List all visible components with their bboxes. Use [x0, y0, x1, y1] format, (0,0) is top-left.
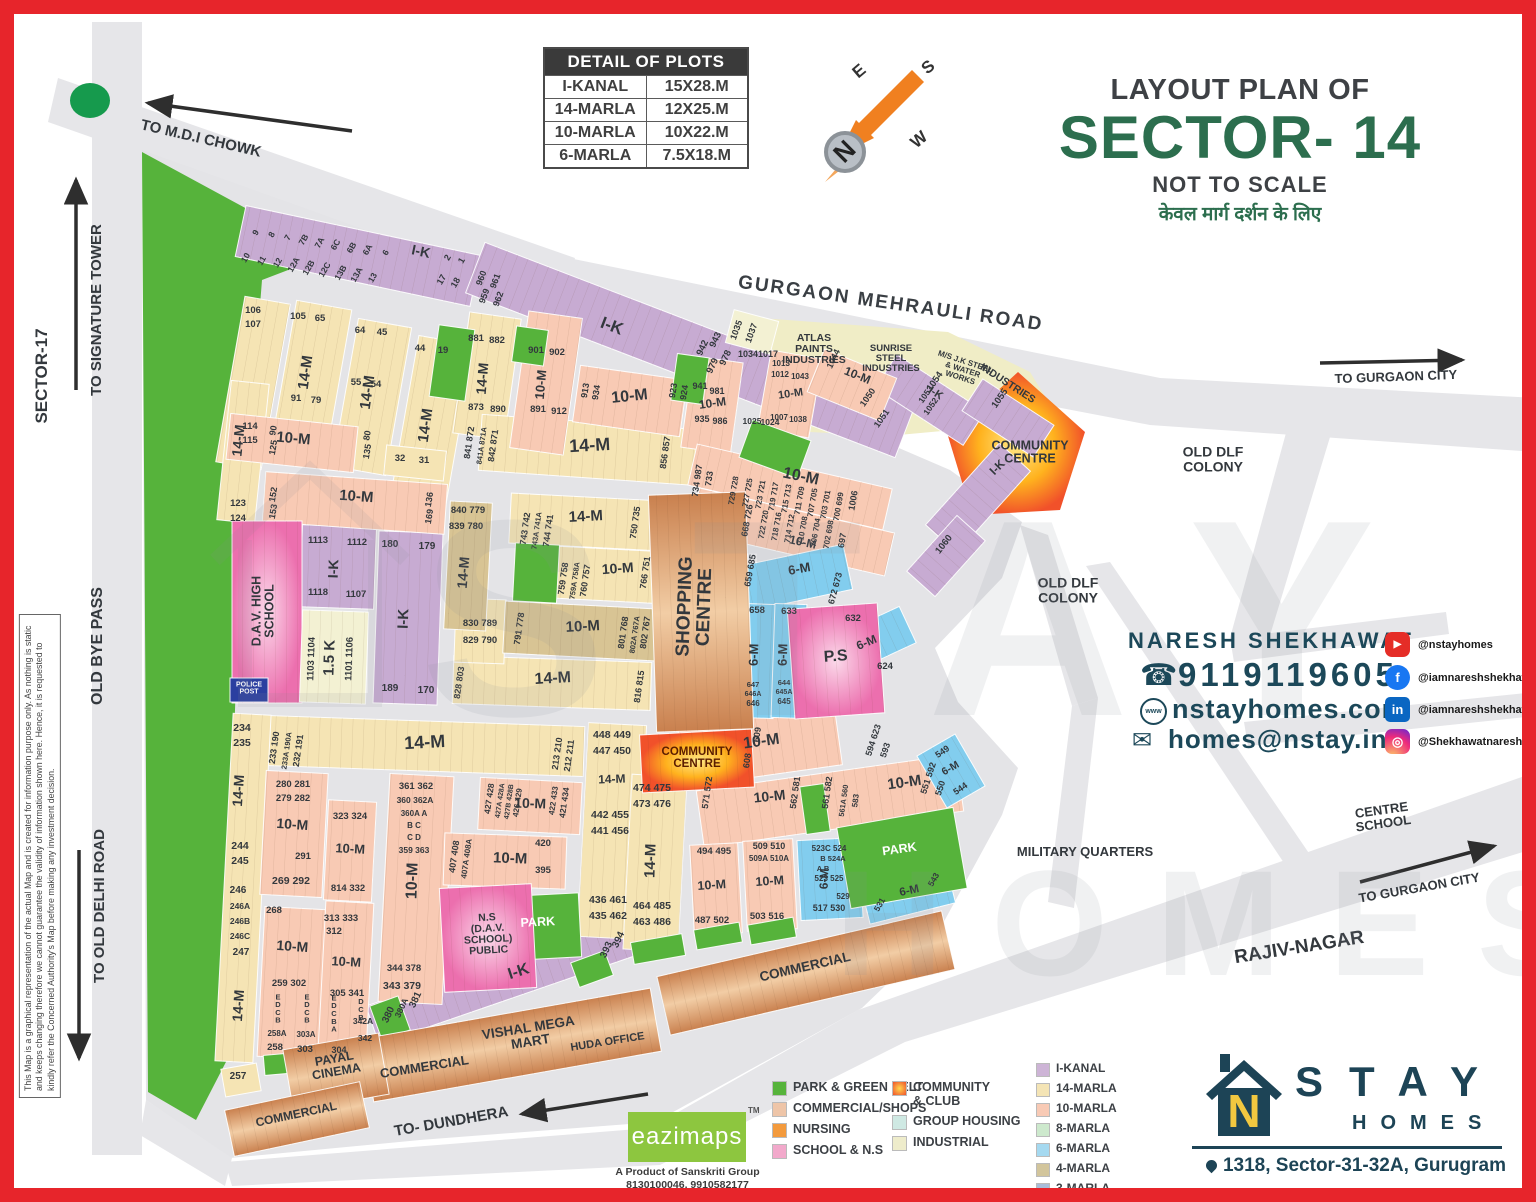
map-label: 360A A	[401, 809, 428, 818]
map-label: 45	[377, 327, 388, 338]
map-label: 1112	[347, 537, 367, 548]
map-label: 279 282	[276, 793, 310, 804]
title-not-to-scale: NOT TO SCALE	[1040, 172, 1440, 198]
address-text: 1318, Sector-31-32A, Gurugram	[1223, 1155, 1506, 1176]
map-label: 463 486	[633, 916, 671, 928]
map-label: 303A	[296, 1030, 315, 1039]
map-label: EDCBA	[331, 993, 337, 1033]
map-label: 65	[315, 313, 326, 324]
logo-homes: HOMES	[1352, 1112, 1495, 1135]
map-label: 79	[311, 395, 322, 406]
map-label: 10-M	[335, 840, 365, 857]
map-label: 14-M	[229, 989, 247, 1022]
map-label: 1012	[771, 370, 789, 379]
map-label: 935	[694, 414, 709, 424]
contact-phone[interactable]: 9119119605	[1178, 656, 1398, 694]
map-label: 873	[468, 402, 484, 413]
legend-swatch	[772, 1144, 787, 1159]
map-label: 986	[712, 416, 727, 426]
map-label: 106	[245, 305, 261, 316]
linkedin-icon: in	[1385, 697, 1410, 722]
legend-label: GROUP HOUSING	[913, 1114, 1020, 1128]
watermark-homes: HOMES	[835, 839, 1536, 1007]
map-label: 44	[415, 343, 426, 354]
map-label: 115	[242, 435, 258, 446]
legend-item: 14-MARLA	[1036, 1082, 1117, 1097]
legend-swatch	[1036, 1063, 1050, 1077]
map-label: 323 324	[333, 811, 368, 822]
map-label: 981	[709, 386, 724, 396]
map-label: 1118	[308, 587, 328, 598]
map-label: EDCB	[304, 992, 310, 1024]
map-label: 313 333	[324, 913, 358, 924]
nstay-house-logo: N	[1198, 1048, 1290, 1140]
phone-icon: ☎	[1140, 658, 1177, 693]
social-link-linkedin[interactable]: in@iamnareshshekhawat	[1385, 697, 1536, 722]
map-label: 1107	[346, 589, 367, 600]
map-label: EDCB	[275, 992, 281, 1024]
legend-label: 14-MARLA	[1056, 1082, 1117, 1096]
disclaimer-text: This Map is a graphical representation o…	[19, 614, 61, 1098]
map-label: 1113	[308, 535, 328, 546]
map-label: 342	[358, 1033, 372, 1043]
compass-rose-icon: N E S W	[800, 50, 960, 200]
map-label: 473 476	[633, 798, 671, 810]
title-line1: LAYOUT PLAN OF	[1040, 74, 1440, 107]
map-label: 14-M	[473, 362, 492, 395]
map-label: 442 455	[591, 809, 629, 821]
plot-type: I-KANAL	[545, 76, 647, 98]
plot-size: 12X25.M	[647, 99, 748, 121]
plot-type: 10-MARLA	[545, 122, 647, 144]
map-label: 814 332	[331, 883, 365, 894]
social-handle: @Shekhawatnaresh	[1418, 736, 1522, 748]
map-label: 1101 1106	[343, 637, 356, 681]
roundabout-dot	[70, 83, 110, 118]
map-label: 107	[245, 319, 261, 330]
map-label: 55	[351, 377, 362, 388]
map-label: 257	[230, 1071, 247, 1082]
map-label: 509 510	[753, 841, 786, 851]
brand-address: 1318, Sector-31-32A, Gurugram	[1196, 1155, 1516, 1177]
map-label: PARK	[520, 914, 555, 930]
legend-label: NURSING	[793, 1122, 851, 1136]
legend-label: 10-MARLA	[1056, 1102, 1117, 1116]
legend-item: 10-MARLA	[1036, 1102, 1117, 1117]
map-label: 941	[692, 381, 707, 391]
contact-email[interactable]: homes@nstay.in	[1168, 724, 1387, 755]
social-link-facebook[interactable]: f@iamnareshshekhawat	[1385, 665, 1536, 690]
map-label: I-K	[325, 559, 342, 578]
map-label: 912	[551, 406, 567, 417]
map-label: 14-M	[569, 434, 611, 456]
map-label: 1038	[789, 415, 807, 424]
eazimaps-phones: 8130100046, 9910582177	[600, 1179, 775, 1191]
map-label: 189	[382, 683, 399, 694]
map-label: 881	[468, 333, 485, 344]
location-pin-icon	[1204, 1158, 1220, 1174]
map-label: 90	[267, 425, 279, 437]
detail-of-plots-table: DETAIL OF PLOTS I-KANAL 15X28.M 14-MARLA…	[543, 47, 749, 169]
map-label: 344 378	[387, 963, 421, 974]
map-label: 10-M	[276, 815, 309, 833]
map-label: 343 379	[383, 980, 421, 992]
contact-website[interactable]: nstayhomes.com	[1172, 694, 1407, 725]
title-sector: SECTOR- 14	[1040, 107, 1440, 168]
legend-swatch	[1036, 1083, 1050, 1097]
map-label: 890	[490, 404, 506, 415]
map-label: 64	[355, 325, 366, 336]
map-label: 1034	[738, 349, 758, 359]
map-label: 891	[530, 404, 547, 415]
map-label: 441 456	[591, 825, 629, 837]
map-label: 10-M	[697, 877, 726, 893]
map-label: 244	[231, 840, 249, 852]
table-row: 6-MARLA 7.5X18.M	[545, 144, 747, 167]
map-label: 32	[395, 453, 406, 464]
map-label: 303	[297, 1044, 313, 1055]
map-label: TO SIGNATURE TOWER	[88, 224, 105, 396]
title-block: LAYOUT PLAN OF SECTOR- 14 NOT TO SCALE क…	[1040, 74, 1440, 226]
logo-stay: STAY	[1295, 1058, 1504, 1106]
plot-size: 10X22.M	[647, 122, 748, 144]
legend-swatch	[892, 1115, 907, 1130]
instagram-icon: ◎	[1385, 729, 1410, 754]
compass-e: E	[849, 60, 870, 82]
map-label: 503 516	[750, 911, 784, 922]
legend-swatch	[892, 1081, 907, 1096]
map-label: 1007	[770, 413, 788, 422]
legend-item: GROUP HOUSING	[892, 1114, 1020, 1130]
legend-label: SCHOOL & N.S	[793, 1143, 883, 1157]
legend-item: COMMUNITY & CLUB	[892, 1080, 1020, 1109]
social-handle: @iamnareshshekhawat	[1418, 704, 1536, 716]
map-label: 10-M	[755, 873, 784, 889]
facebook-icon: f	[1385, 665, 1410, 690]
legend-label: 3-MARLA	[1056, 1182, 1110, 1196]
map-label: TO GURGAON CITY	[1334, 367, 1457, 386]
table-row: 10-MARLA 10X22.M	[545, 121, 747, 144]
map-label: 436 461	[589, 894, 627, 906]
map-label: 1025	[743, 416, 762, 426]
map-label: 10-M	[276, 429, 312, 449]
title-hindi: केवल मार्ग दर्शन के लिए	[1040, 200, 1440, 226]
map-label: 312	[326, 926, 342, 937]
map-label: 246A	[230, 901, 250, 911]
social-handle: @nstayhomes	[1418, 639, 1493, 651]
layout-plan-poster: TO M.D.I CHOWKSECTOR-17TO SIGNATURE TOWE…	[0, 0, 1536, 1202]
www-label: www	[1145, 708, 1161, 715]
map-label: 509A 510A	[749, 854, 789, 863]
legend-item: 8-MARLA	[1036, 1122, 1117, 1137]
table-row: I-KANAL 15X28.M	[545, 75, 747, 98]
envelope-icon: ✉	[1132, 726, 1152, 755]
map-label: 91	[291, 393, 302, 404]
map-label: 1043	[791, 372, 809, 381]
social-handle: @iamnareshshekhawat	[1418, 672, 1536, 684]
social-link-youtube[interactable]: ▶@nstayhomes	[1385, 632, 1493, 657]
map-label: I-K	[395, 608, 413, 629]
map-label: 123	[230, 498, 246, 509]
legend-item: 4-MARLA	[1036, 1162, 1117, 1177]
legend-plot-sizes: I-KANAL14-MARLA10-MARLA8-MARLA6-MARLA4-M…	[1036, 1062, 1117, 1202]
map-label: 247	[233, 947, 250, 958]
map-label: 359 363	[399, 845, 430, 855]
legend-label: I-KANAL	[1056, 1062, 1105, 1076]
eazimaps-tm: TM	[748, 1106, 760, 1115]
map-label: TO OLD DELHI ROAD	[91, 829, 108, 983]
map-label: 268	[266, 905, 282, 916]
table-title: DETAIL OF PLOTS	[545, 49, 747, 75]
direction-arrow	[1320, 360, 1462, 363]
map-label: 10-M	[532, 369, 550, 400]
legend-label: 6-MARLA	[1056, 1142, 1110, 1156]
social-link-instagram[interactable]: ◎@Shekhawatnaresh	[1385, 729, 1522, 754]
legend-swatch	[1036, 1183, 1050, 1197]
map-label: 1013	[772, 359, 790, 368]
map-label: A B	[817, 864, 830, 873]
map-label: 19	[438, 345, 449, 356]
map-label: 882	[489, 335, 505, 346]
map-label: 487 502	[695, 915, 729, 926]
map-label: 258	[267, 1042, 283, 1053]
plot-type: 6-MARLA	[545, 145, 647, 167]
map-label: 435 462	[589, 910, 627, 922]
youtube-icon: ▶	[1385, 632, 1410, 657]
map-label: OLD BYE PASS	[89, 587, 106, 705]
map-label: 259 302	[272, 978, 306, 989]
legend-item: 3-MARLA	[1036, 1182, 1117, 1197]
contact-name: NARESH SHEKHAWAT	[1128, 628, 1414, 654]
map-label: 902	[549, 347, 565, 358]
map-label: 14-M	[229, 774, 247, 807]
map-label: 245	[231, 855, 249, 867]
map-label: 342A	[353, 1016, 373, 1026]
map-label: 1017	[758, 349, 778, 359]
map-label: 258A	[267, 1029, 286, 1038]
legend-label: INDUSTRIAL	[913, 1135, 989, 1149]
eazimaps-logo: eazimaps	[628, 1112, 746, 1162]
map-label: 464 485	[633, 900, 671, 912]
legend-item: INDUSTRIAL	[892, 1135, 1020, 1151]
map-label: 474 475	[633, 782, 671, 794]
map-label: 304	[331, 1045, 346, 1055]
map-label: C D	[407, 833, 421, 842]
map-label: 1103 1104	[305, 636, 318, 681]
globe-icon: www	[1140, 698, 1167, 725]
map-label: 14-M	[641, 843, 659, 878]
legend-label: 8-MARLA	[1056, 1122, 1110, 1136]
legend-swatch	[1036, 1123, 1050, 1137]
map-label: 269 292	[272, 875, 310, 887]
map-label: 246B	[230, 916, 250, 926]
map-label: 420	[535, 838, 551, 849]
legend-swatch	[772, 1123, 787, 1138]
legend-swatch	[1036, 1103, 1050, 1117]
map-label: 10-M	[403, 862, 421, 899]
map-label: 583	[850, 793, 861, 808]
logo-underline	[1192, 1146, 1502, 1149]
table-row: 14-MARLA 12X25.M	[545, 98, 747, 121]
map-label: 1.5 K	[320, 639, 338, 676]
map-label: 361 362	[399, 781, 433, 792]
map-label: 10-M	[276, 937, 309, 955]
map-label: 80	[361, 430, 373, 442]
map-label: 246C	[230, 931, 250, 941]
legend-label: COMMUNITY & CLUB	[913, 1080, 990, 1109]
map-label: 114	[242, 421, 258, 432]
legend-swatch	[1036, 1143, 1050, 1157]
map-label: 901	[528, 345, 545, 356]
map-label: 280 281	[276, 779, 311, 790]
plot-type: 14-MARLA	[545, 99, 647, 121]
compass-w: W	[907, 126, 932, 151]
map-label: 10-M	[753, 786, 786, 805]
logo-n: N	[1227, 1085, 1260, 1137]
map-label: 235	[233, 737, 251, 749]
map-label: SECTOR-17	[32, 328, 51, 423]
legend-land-use-2: COMMUNITY & CLUBGROUP HOUSINGINDUSTRIAL	[892, 1080, 1020, 1156]
map-label: B C	[407, 821, 421, 830]
legend-swatch	[772, 1081, 787, 1096]
map-label: 124	[230, 513, 247, 524]
plot-size: 7.5X18.M	[647, 145, 748, 167]
legend-swatch	[892, 1136, 907, 1151]
map-label: 105	[290, 311, 307, 322]
legend-swatch	[1036, 1163, 1050, 1177]
legend-item: I-KANAL	[1036, 1062, 1117, 1077]
eazimaps-tagline: A Product of Sanskriti Group	[600, 1166, 775, 1178]
map-label: 494 495	[697, 846, 732, 857]
map-label: 234	[233, 722, 251, 734]
eazimaps-name: eazimaps	[632, 1123, 743, 1151]
legend-item: 6-MARLA	[1036, 1142, 1117, 1157]
map-label: 360 362A	[397, 795, 434, 805]
map-label: 246	[230, 885, 247, 896]
map-label: 10-M	[493, 849, 528, 867]
plot-size: 15X28.M	[647, 76, 748, 98]
map-label: 54	[371, 379, 382, 390]
legend-swatch	[772, 1102, 787, 1117]
map-label: 395	[535, 865, 552, 876]
compass-s: S	[918, 56, 939, 78]
legend-label: 4-MARLA	[1056, 1162, 1110, 1176]
map-label: 10-M	[331, 953, 361, 970]
map-label: D.A.V. HIGHSCHOOL	[250, 576, 277, 646]
map-label: 291	[295, 851, 312, 862]
